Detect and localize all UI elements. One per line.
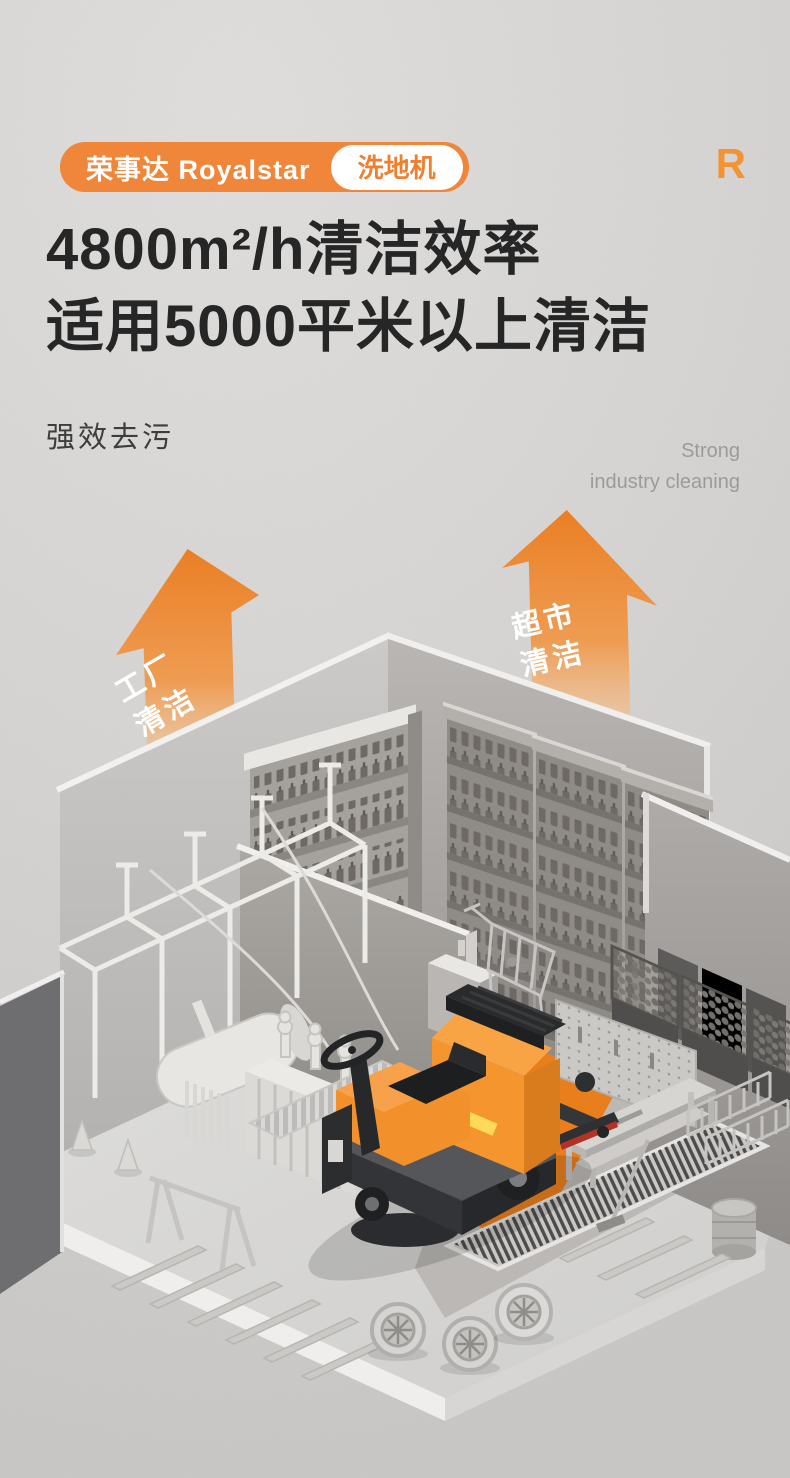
brand-logo-r-icon: R (716, 140, 746, 188)
subheading-en-line1: Strong (590, 436, 740, 467)
headline-line2: 适用5000平米以上清洁 (46, 289, 651, 366)
product-tag-pill: 洗地机 (331, 145, 463, 190)
headline-line1: 4800m²/h清洁效率 (46, 212, 651, 289)
headline: 4800m²/h清洁效率 适用5000平米以上清洁 (46, 212, 651, 365)
subheading-en-line2: industry cleaning (590, 467, 740, 498)
subheading-cn: 强效去污 (46, 414, 174, 456)
brand-badge: 荣事达 Royalstar 洗地机 (60, 142, 469, 192)
round-barrel (712, 1199, 756, 1260)
brand-name: 荣事达 Royalstar (86, 148, 331, 187)
isometric-warehouse-scene (0, 618, 790, 1478)
subheading-en: Strong industry cleaning (590, 436, 740, 498)
front-left-wall (0, 972, 64, 1294)
side-box (322, 1104, 352, 1194)
